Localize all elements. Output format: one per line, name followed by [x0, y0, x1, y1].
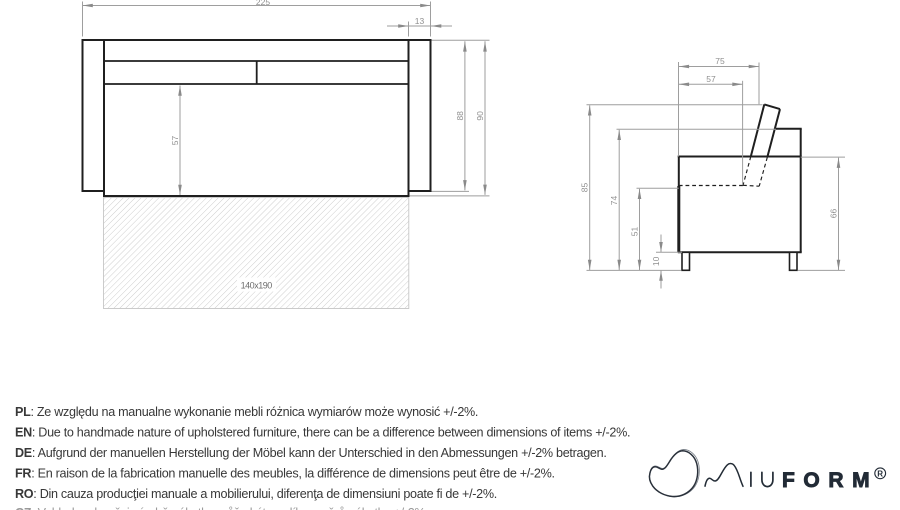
svg-text:EN: Due to handmade nature of: EN: Due to handmade nature of upholstere… [15, 426, 630, 440]
svg-text:75: 75 [715, 56, 725, 66]
svg-text:CZ: Vzhledem k ručni výrobě ná: CZ: Vzhledem k ručni výrobě nábytku může… [15, 506, 429, 510]
svg-text:FR: En raison de la fabricatio: FR: En raison de la fabrication manuelle… [15, 467, 555, 481]
svg-text:57: 57 [170, 136, 180, 146]
svg-text:R: R [877, 469, 883, 478]
svg-text:140x190: 140x190 [241, 280, 273, 290]
svg-text:51: 51 [630, 227, 640, 237]
svg-text:74: 74 [609, 196, 619, 206]
svg-text:66: 66 [829, 209, 839, 219]
svg-text:DE: Aufgrund der manuellen Her: DE: Aufgrund der manuellen Herstellung d… [15, 446, 607, 460]
svg-text:10: 10 [651, 256, 661, 266]
svg-text:90: 90 [475, 111, 485, 121]
svg-text:85: 85 [580, 183, 590, 193]
svg-text:PL: Ze względu na manualne wyk: PL: Ze względu na manualne wykonanie meb… [15, 405, 478, 419]
svg-text:88: 88 [455, 111, 465, 121]
svg-text:13: 13 [415, 16, 425, 26]
svg-text:FORM: FORM [782, 469, 878, 492]
svg-text:57: 57 [706, 74, 716, 84]
svg-text:225: 225 [256, 0, 270, 7]
svg-text:RO: Din cauza producţiei manua: RO: Din cauza producţiei manuale a mobil… [15, 487, 497, 501]
